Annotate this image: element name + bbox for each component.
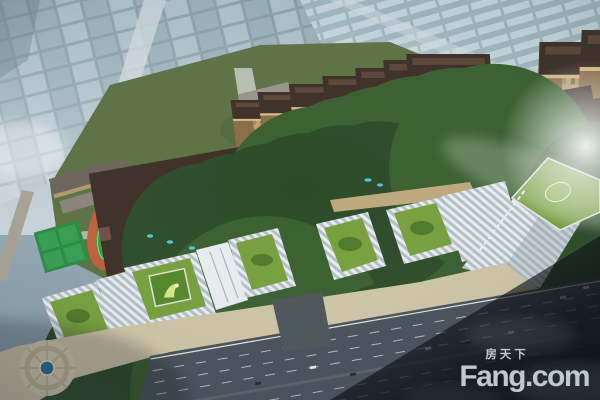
watermark: 房天下 Fang.com xyxy=(459,350,589,393)
scene-canvas xyxy=(0,0,600,400)
rendering-image: 房天下 Fang.com xyxy=(0,0,600,400)
watermark-site-name-en: Fang.com xyxy=(459,362,589,392)
vignette xyxy=(0,0,600,400)
